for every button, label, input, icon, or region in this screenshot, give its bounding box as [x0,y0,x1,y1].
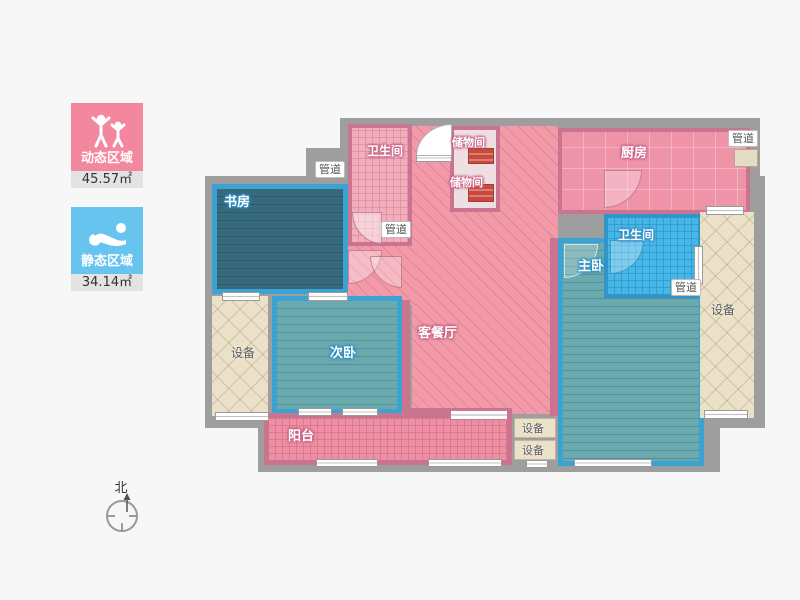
window-master-bottom [574,459,652,467]
label-second-bedroom: 次卧 [330,347,356,360]
window-living-balcony [450,410,508,420]
window-study-bottom-right [308,292,348,301]
label-bath-right: 卫生间 [618,229,654,241]
label-balcony: 阳台 [288,430,314,443]
label-living-dining: 客餐厅 [418,327,457,340]
room-kitchen [558,128,750,214]
label-storage-upper: 储物间 [452,137,485,148]
window-equipment-left-bottom [215,412,269,421]
label-equipment-small-top: 设备 [522,423,544,434]
window-equipment-right-bottom [704,410,748,419]
tag-duct-entry-hall: 管道 [315,161,345,178]
label-study: 书房 [224,196,250,209]
window-equipment-right-top [706,206,744,215]
compass-icon: 北 [95,476,155,538]
compass: 北 [95,476,155,538]
window-study-bottom-left [222,292,260,301]
window-second-bedroom-a [298,408,332,416]
tag-duct-kitchen: 管道 [728,130,758,147]
wall-pink-strip-bedroom [402,300,410,412]
window-second-bedroom-b [342,408,378,416]
window-balcony-a [316,459,378,467]
label-equipment-left: 设备 [231,347,255,359]
label-storage-lower: 储物间 [450,177,483,188]
label-kitchen: 厨房 [621,147,647,160]
storage-shelf-upper [468,148,494,164]
window-balcony-b [428,459,502,467]
label-master-bedroom: 主卧 [578,260,604,273]
compass-north-text: 北 [114,481,127,496]
label-bath-top: 卫生间 [367,145,403,157]
label-equipment-right: 设备 [711,304,735,316]
label-equipment-small-bottom: 设备 [522,445,544,456]
tag-duct-below-bath: 管道 [381,221,411,238]
window-equipment-small-bottom [526,460,548,468]
duct-kitchen-niche [734,149,758,167]
tag-duct-master: 管道 [671,279,701,296]
